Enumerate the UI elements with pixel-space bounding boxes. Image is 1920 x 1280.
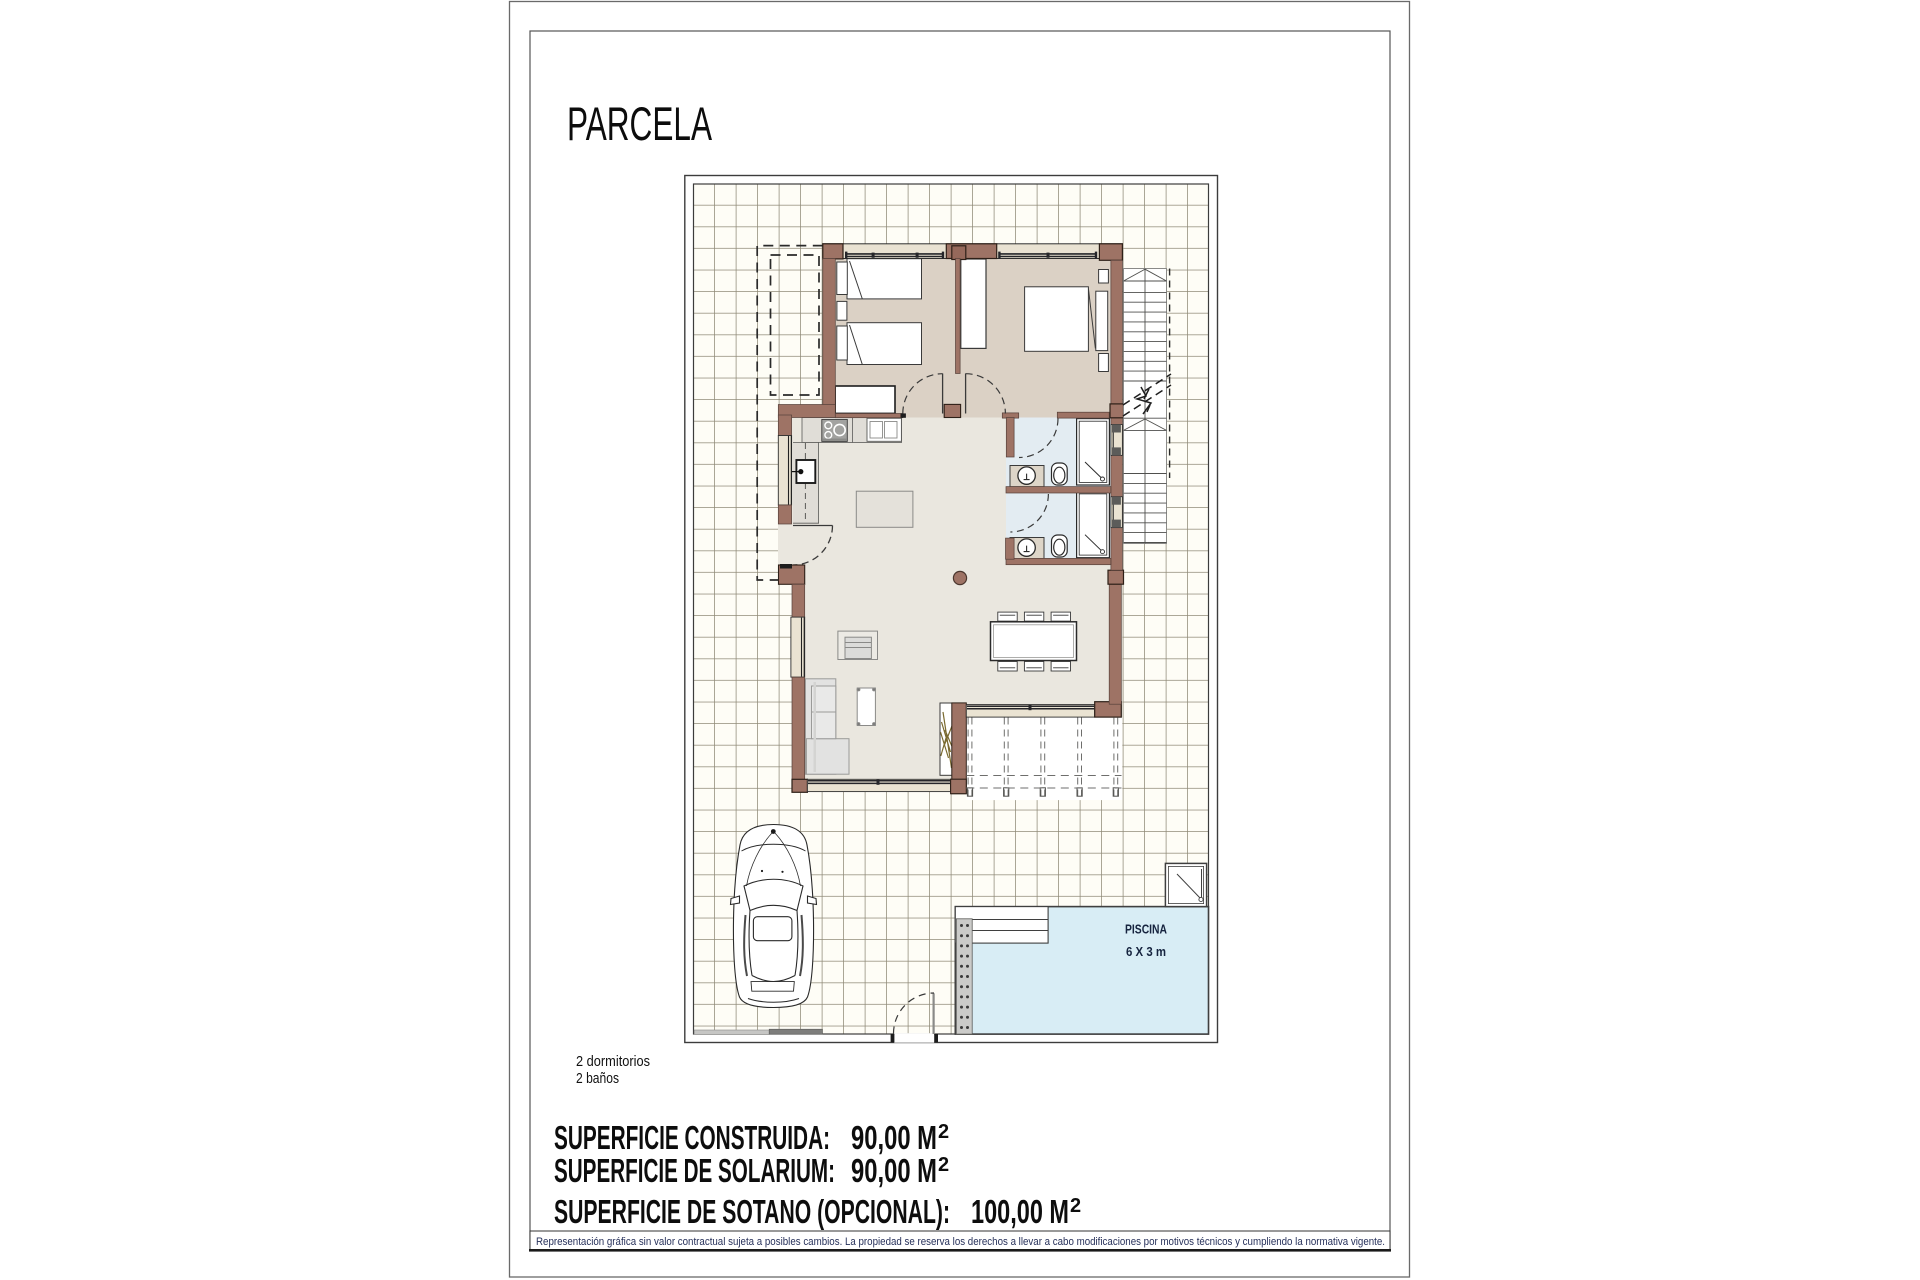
svg-text:2: 2	[938, 1121, 949, 1143]
svg-text:2: 2	[1070, 1195, 1081, 1217]
svg-text:90,00 M: 90,00 M	[851, 1119, 937, 1156]
svg-text:PISCINA: PISCINA	[1125, 923, 1167, 937]
svg-text:SUPERFICIE DE SOTANO (OPCIONAL: SUPERFICIE DE SOTANO (OPCIONAL):	[554, 1193, 950, 1230]
svg-text:PARCELA: PARCELA	[567, 97, 712, 150]
svg-text:6 X 3 m: 6 X 3 m	[1126, 945, 1166, 959]
svg-text:SUPERFICIE DE SOLARIUM:: SUPERFICIE DE SOLARIUM:	[554, 1152, 835, 1189]
svg-text:90,00 M: 90,00 M	[851, 1152, 937, 1189]
svg-text:Representación gráfica sin val: Representación gráfica sin valor contrac…	[536, 1236, 1385, 1248]
svg-text:2 baños: 2 baños	[576, 1071, 619, 1087]
svg-text:2: 2	[938, 1154, 949, 1176]
svg-text:SUPERFICIE CONSTRUIDA:: SUPERFICIE CONSTRUIDA:	[554, 1119, 830, 1156]
svg-text:100,00 M: 100,00 M	[971, 1193, 1069, 1230]
svg-text:2 dormitorios: 2 dormitorios	[576, 1054, 650, 1070]
